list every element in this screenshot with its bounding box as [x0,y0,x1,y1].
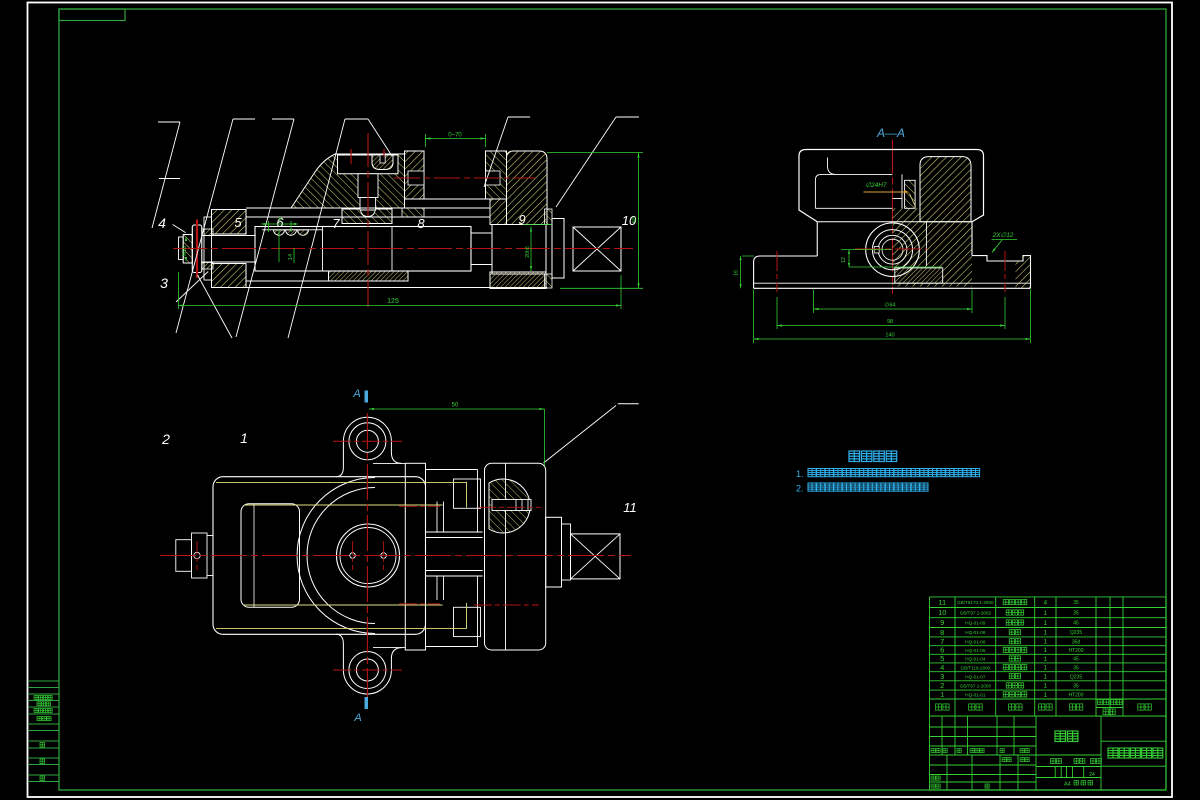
svg-text:HT200: HT200 [1068,693,1083,699]
svg-text:45: 45 [1073,657,1079,663]
svg-text:HQ-01-08: HQ-01-08 [965,630,986,635]
svg-text:12: 12 [841,257,847,263]
svg-text:8: 8 [278,217,281,223]
svg-text:1: 1 [240,430,248,446]
svg-text:10: 10 [938,608,946,617]
svg-text:A: A [353,712,361,724]
svg-text:3: 3 [160,275,168,291]
svg-text:Q235: Q235 [1070,630,1082,636]
svg-text:GB/T97.1-2002: GB/T97.1-2002 [960,611,992,616]
svg-text:2.: 2. [796,484,804,494]
svg-text:4: 4 [1044,599,1048,606]
svg-text:A: A [352,388,360,400]
svg-text:35d: 35d [1072,639,1081,645]
svg-text:1: 1 [1044,629,1048,636]
svg-text:9: 9 [940,618,944,627]
svg-text:∅24H7: ∅24H7 [865,182,887,189]
svg-text:7: 7 [332,216,340,231]
svg-text:2: 2 [161,431,170,447]
svg-text:HQ-01-04: HQ-01-04 [965,657,986,662]
svg-text:1: 1 [1044,656,1048,663]
svg-text:1: 1 [1044,639,1048,646]
svg-text:Q235: Q235 [1070,674,1082,680]
svg-text:5: 5 [940,654,944,663]
svg-text:HT200: HT200 [1068,648,1083,654]
svg-text:2: 2 [940,681,944,690]
svg-text:35: 35 [1073,611,1079,617]
svg-text:14: 14 [288,254,294,260]
svg-text:GB/T67.1-2000: GB/T67.1-2000 [960,683,992,688]
svg-text:8: 8 [940,628,944,637]
svg-text:24: 24 [1089,772,1095,778]
svg-text:35: 35 [1073,665,1079,671]
svg-text:M10: M10 [182,246,188,257]
svg-text:GB/T6170.1-2000: GB/T6170.1-2000 [957,600,994,605]
svg-text:16: 16 [734,270,740,276]
svg-text:2X∅12: 2X∅12 [992,232,1014,239]
svg-text:1: 1 [940,690,944,699]
svg-text:A—A: A—A [876,126,905,140]
svg-text:HQ-01-05: HQ-01-05 [965,648,986,653]
svg-text:1.: 1. [796,469,804,479]
svg-text:7: 7 [940,637,944,646]
svg-text:35: 35 [1073,683,1079,689]
svg-text:1: 1 [1044,683,1048,690]
svg-text:HQ-01-06: HQ-01-06 [965,639,986,644]
svg-text:11: 11 [623,500,637,515]
svg-text:58: 58 [632,217,638,223]
svg-text:45: 45 [1073,621,1079,627]
svg-text:1: 1 [1044,665,1048,672]
svg-text:50: 50 [452,403,459,409]
svg-text:4: 4 [940,663,944,672]
svg-text:11: 11 [938,598,946,607]
svg-text:HQ-01-01: HQ-01-01 [965,693,986,698]
svg-text:3: 3 [940,672,944,681]
svg-text:4: 4 [158,215,166,231]
svg-text:98: 98 [887,319,893,325]
svg-text:125: 125 [387,298,399,305]
svg-text:140: 140 [885,333,894,339]
svg-text:35: 35 [1073,600,1079,606]
svg-text:GB/T119-2000: GB/T119-2000 [960,665,990,670]
svg-text:∅64: ∅64 [885,302,896,309]
svg-text:HQ-01-07: HQ-01-07 [965,674,986,679]
svg-text:A4: A4 [1064,782,1071,788]
svg-text:1: 1 [1044,647,1048,654]
svg-text:0~70: 0~70 [448,133,462,139]
svg-text:1: 1 [1044,692,1048,699]
svg-text:1: 1 [1044,610,1048,617]
svg-text:20h6: 20h6 [525,246,531,258]
svg-text:1: 1 [1044,673,1048,680]
svg-text:1: 1 [1044,620,1048,627]
svg-text:HQ-01-09: HQ-01-09 [965,621,986,626]
svg-text:8: 8 [417,216,425,231]
